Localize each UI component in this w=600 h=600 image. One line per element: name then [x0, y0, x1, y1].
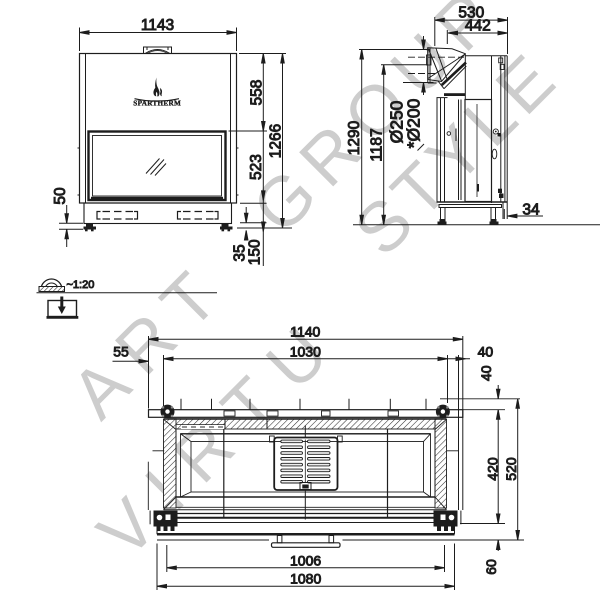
- svg-text:55: 55: [113, 343, 129, 359]
- svg-text:1080: 1080: [290, 571, 321, 587]
- svg-text:1143: 1143: [141, 17, 174, 34]
- svg-text:~1:20: ~1:20: [67, 279, 95, 291]
- svg-text:1140: 1140: [290, 324, 320, 340]
- svg-text:40: 40: [478, 343, 494, 359]
- svg-text:34: 34: [522, 202, 540, 219]
- svg-text:60: 60: [483, 559, 499, 575]
- svg-text:1290: 1290: [346, 120, 363, 155]
- svg-text:1006: 1006: [290, 552, 321, 568]
- svg-text:442: 442: [465, 18, 491, 35]
- svg-text:*Ø200: *Ø200: [404, 98, 424, 148]
- svg-text:520: 520: [503, 457, 519, 481]
- svg-text:35: 35: [232, 244, 249, 261]
- svg-text:1030: 1030: [290, 343, 321, 359]
- svg-text:40: 40: [478, 365, 494, 381]
- svg-text:1266: 1266: [268, 124, 285, 158]
- svg-text:50: 50: [52, 187, 69, 205]
- svg-text:1187: 1187: [369, 128, 386, 161]
- svg-text:558: 558: [249, 80, 266, 106]
- svg-text:523: 523: [248, 154, 265, 180]
- svg-text:SPARTHERM: SPARTHERM: [133, 100, 181, 108]
- svg-text:420: 420: [485, 457, 501, 481]
- svg-text:150: 150: [247, 239, 264, 265]
